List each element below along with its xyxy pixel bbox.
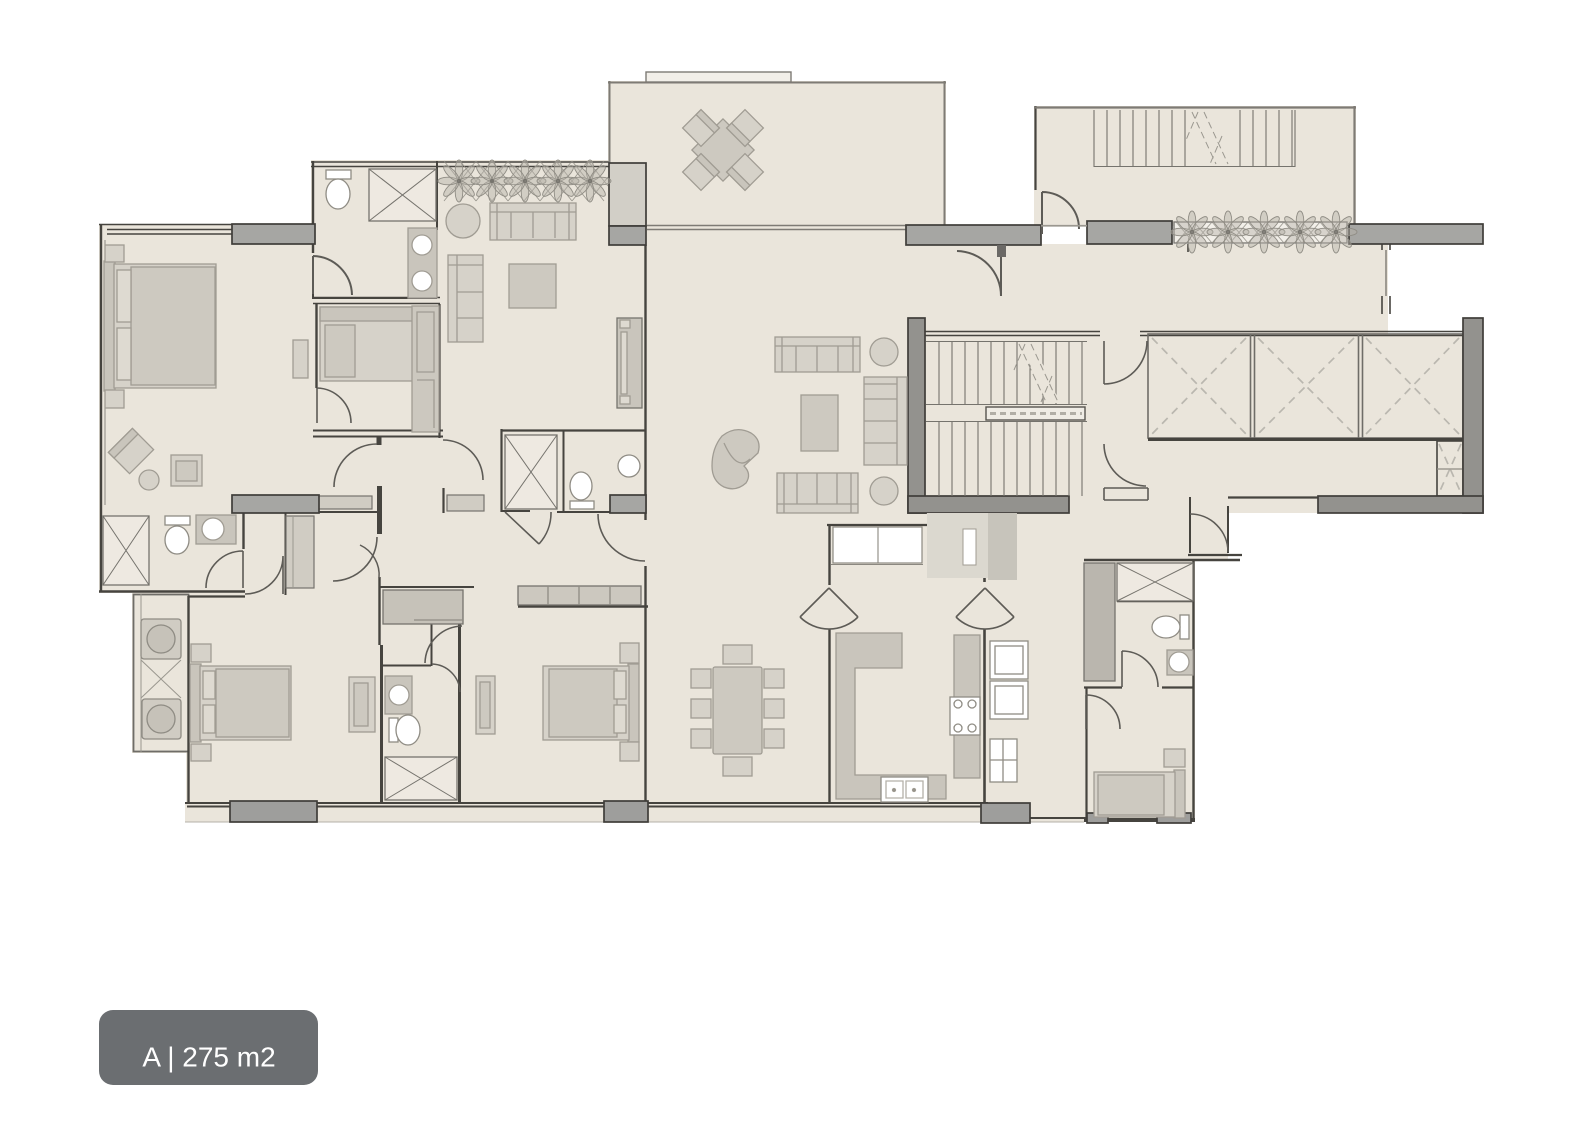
svg-text:A | 275 m2: A | 275 m2 — [142, 1041, 275, 1072]
